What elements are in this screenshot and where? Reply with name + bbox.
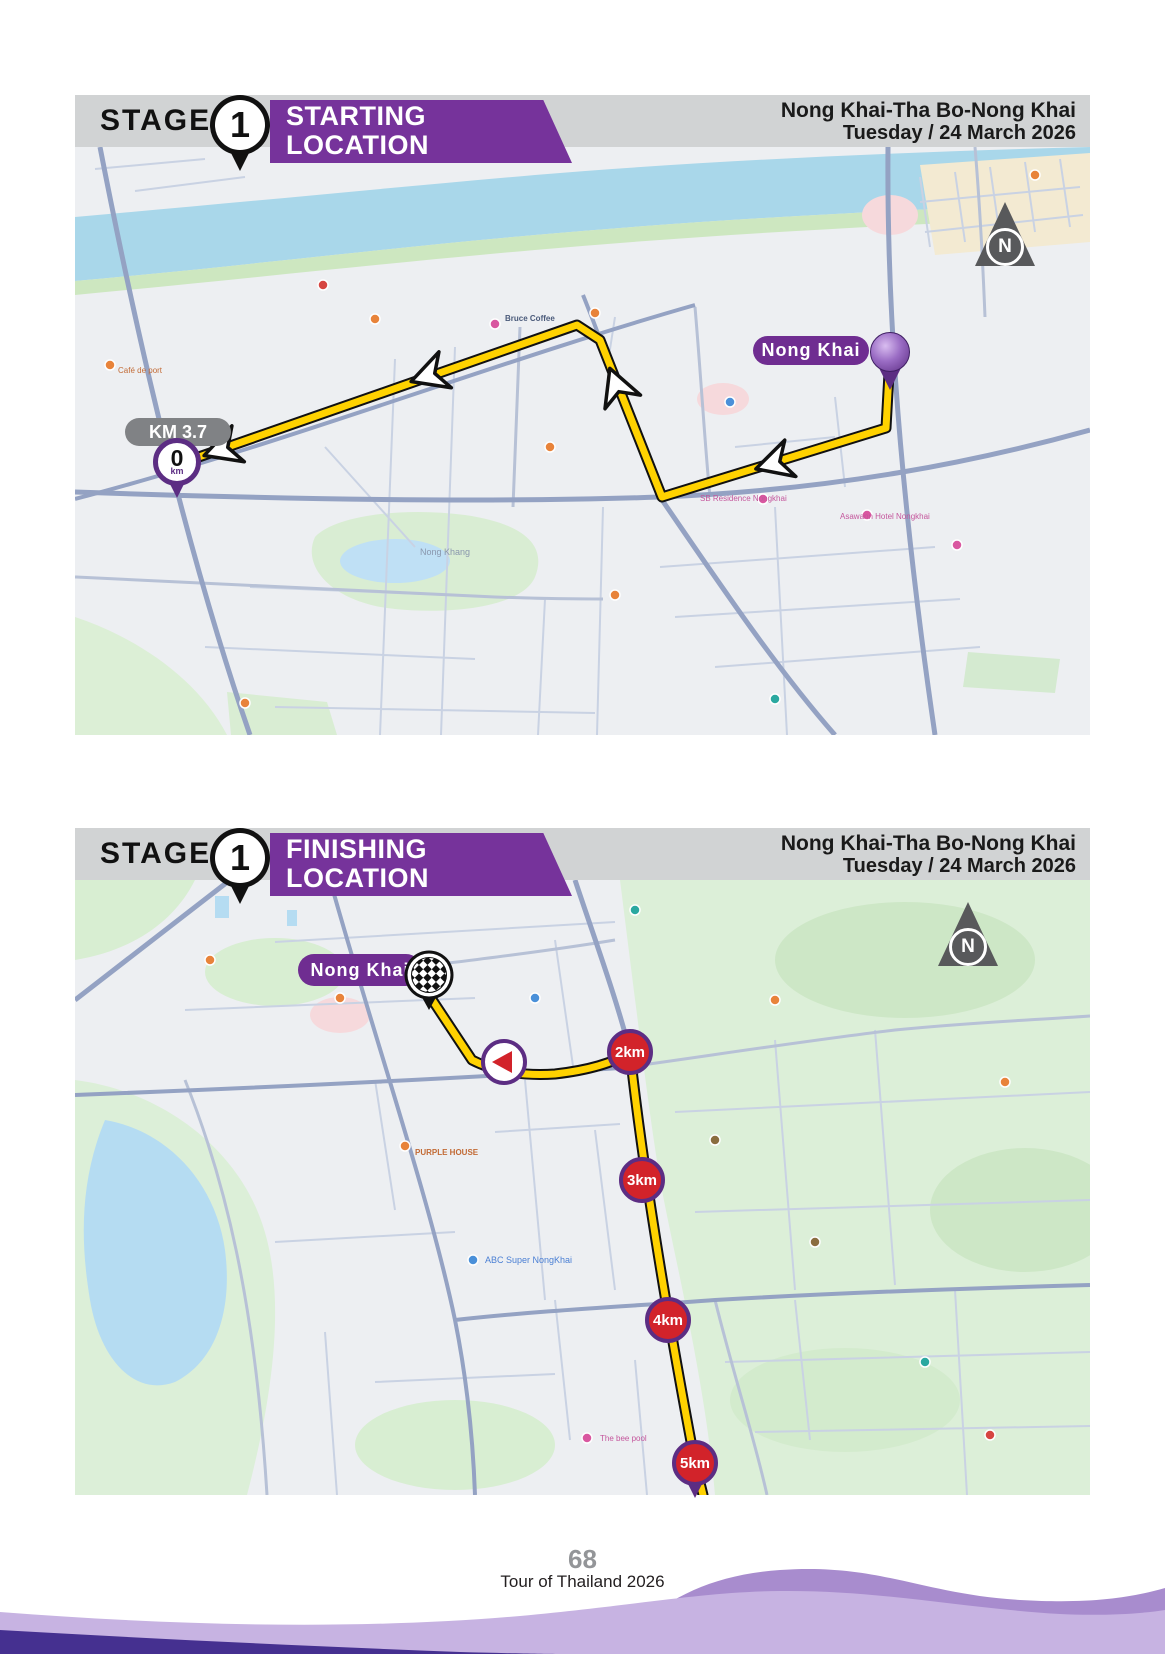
banner-line1: STARTING — [286, 102, 572, 131]
poi-label: Café de port — [118, 366, 162, 375]
start-banner: STARTING LOCATION — [270, 100, 572, 163]
race-title: Nong Khai-Tha Bo-Nong Khai — [781, 832, 1076, 855]
race-date: Tuesday / 24 March 2026 — [781, 122, 1076, 144]
finish-direction-marker — [481, 1039, 527, 1085]
start-pin-ball — [870, 332, 910, 372]
banner-line2: LOCATION — [286, 864, 572, 893]
red-arrow-icon — [492, 1051, 512, 1073]
race-date: Tuesday / 24 March 2026 — [781, 855, 1076, 877]
north-indicator: N — [938, 902, 998, 968]
poi-label: PURPLE HOUSE — [415, 1148, 478, 1157]
stage-number-pin: 1 — [210, 95, 270, 155]
north-indicator: N — [975, 202, 1035, 268]
zero-km-marker: 0 km — [153, 438, 201, 508]
km-marker-3km: 3km — [619, 1157, 665, 1203]
start-pin — [870, 332, 910, 394]
stage-label: STAGE — [100, 104, 211, 138]
banner-line2: LOCATION — [286, 131, 572, 160]
stage-number: 1 — [215, 100, 265, 150]
poi-label: ABC Super NongKhai — [485, 1256, 572, 1265]
finish-pin — [402, 948, 456, 1012]
poi-label: Nong Khang — [420, 548, 470, 557]
km-marker-5km: 5km — [672, 1440, 718, 1486]
stage-number: 1 — [215, 833, 265, 883]
race-title: Nong Khai-Tha Bo-Nong Khai — [781, 99, 1076, 122]
race-title-block: Nong Khai-Tha Bo-Nong Khai Tuesday / 24 … — [781, 832, 1076, 877]
start-city-label: Nong Khai — [753, 336, 869, 365]
km-marker-4km: 4km — [645, 1297, 691, 1343]
km-marker-2km: 2km — [607, 1029, 653, 1075]
zero-km-unit: km — [170, 467, 183, 476]
banner-line1: FINISHING — [286, 835, 572, 864]
route-book-page: Bruce Coffee Café de port Nong Khang SB … — [0, 0, 1165, 1654]
finish-banner: FINISHING LOCATION — [270, 833, 572, 896]
footer-wave-decoration — [0, 1534, 1165, 1654]
stage-number-pin: 1 — [210, 828, 270, 888]
poi-label: Bruce Coffee — [505, 314, 555, 323]
poi-label: Asawann Hotel Nongkhai — [840, 512, 930, 521]
poi-label: SB Residence Nongkhai — [700, 494, 787, 503]
stage-label: STAGE — [100, 837, 211, 871]
finish-map-canvas — [75, 880, 1090, 1495]
zero-km-value: 0 — [171, 449, 184, 467]
poi-label: The bee pool — [600, 1434, 647, 1443]
race-title-block: Nong Khai-Tha Bo-Nong Khai Tuesday / 24 … — [781, 99, 1076, 144]
